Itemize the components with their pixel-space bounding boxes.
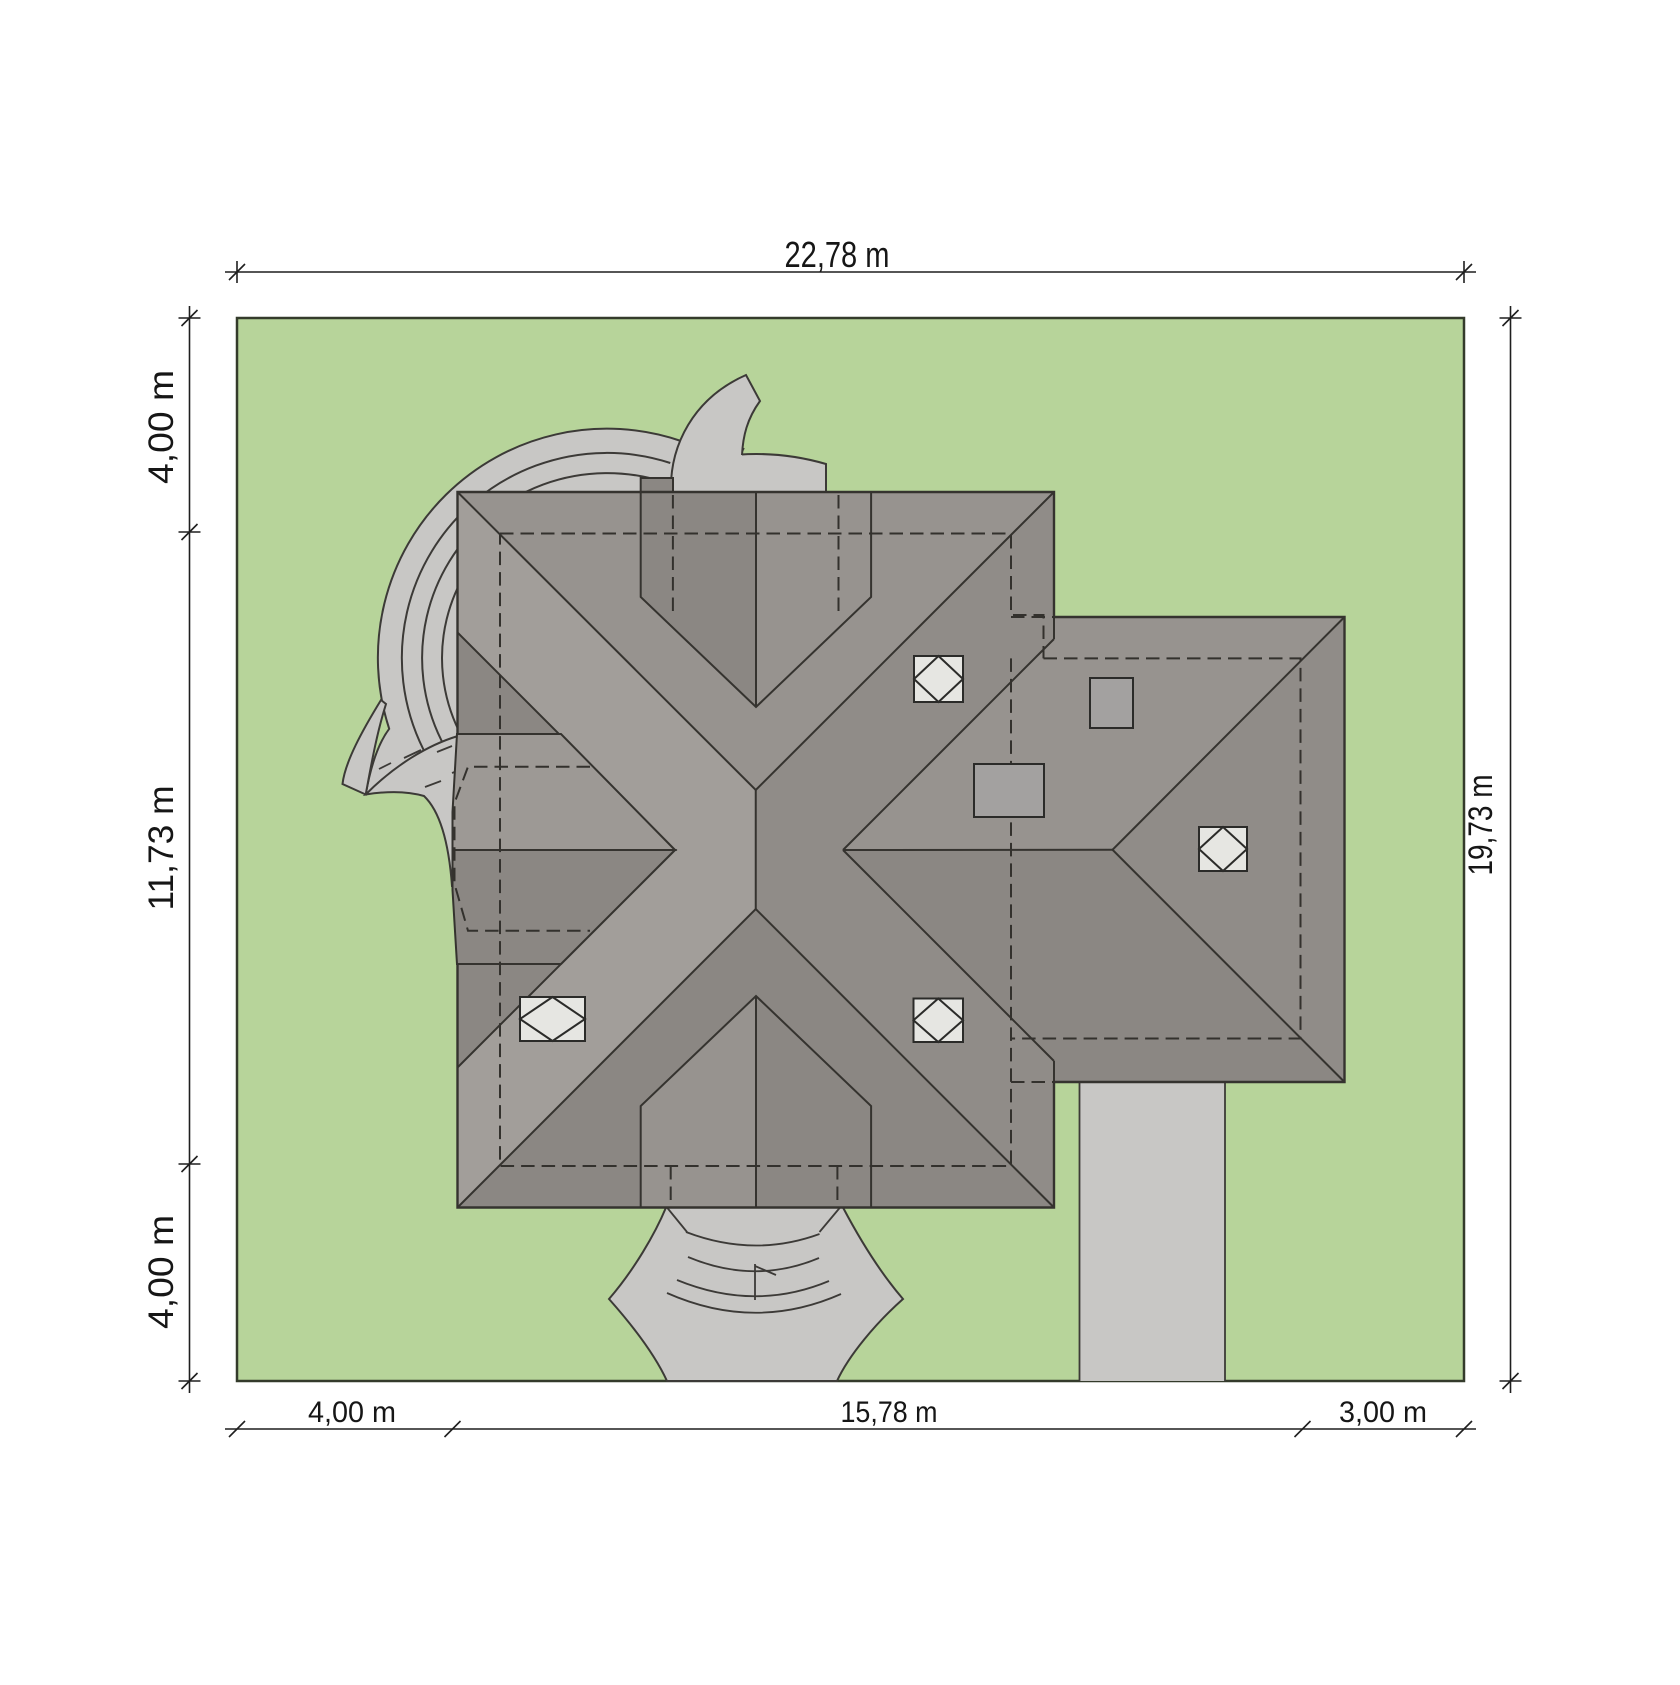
svg-text:19,73 m: 19,73 m: [1462, 775, 1500, 876]
svg-text:4,00 m: 4,00 m: [142, 370, 181, 484]
svg-text:15,78 m: 15,78 m: [841, 1396, 938, 1429]
svg-text:11,73 m: 11,73 m: [142, 786, 181, 911]
svg-text:3,00 m: 3,00 m: [1339, 1396, 1427, 1429]
svg-text:4,00 m: 4,00 m: [142, 1215, 181, 1329]
svg-text:22,78 m: 22,78 m: [785, 234, 890, 275]
svg-text:4,00 m: 4,00 m: [308, 1396, 396, 1429]
